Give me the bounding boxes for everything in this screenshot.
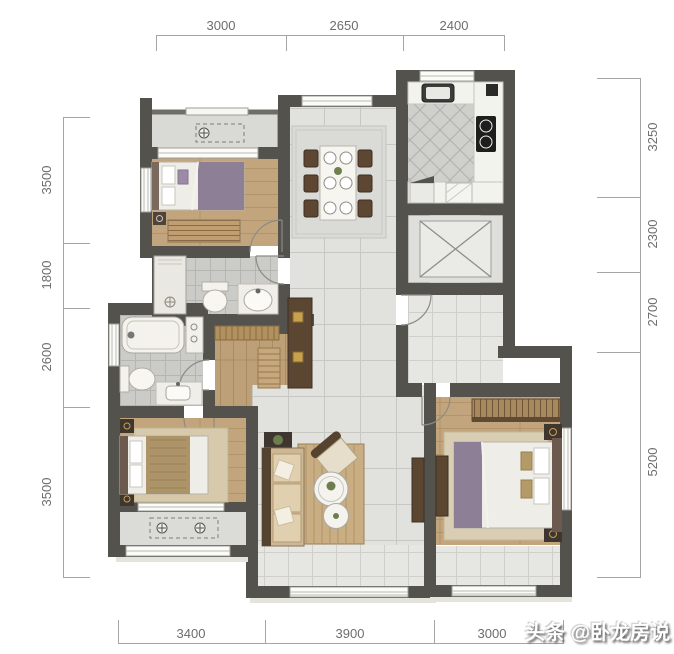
watermark: 头条 @卧龙房说 [525, 616, 674, 645]
furniture-bedroom-small [120, 419, 228, 506]
chair [358, 200, 372, 217]
pillow [162, 187, 175, 205]
stove [476, 116, 496, 152]
dim-top-0: 3000 [207, 18, 236, 33]
plant-icon [334, 167, 342, 175]
plate [324, 202, 336, 214]
nightstand [153, 212, 166, 225]
cabinet-knob [293, 312, 303, 322]
throw-pillow [274, 506, 294, 526]
faucet-icon [176, 382, 180, 386]
floor-balcony-small [120, 512, 246, 545]
room-balcony-top [148, 108, 280, 152]
headboard [152, 162, 159, 210]
toilet [129, 368, 155, 390]
furniture-dining [292, 126, 386, 238]
plant-icon [333, 513, 339, 519]
plant-icon [327, 482, 336, 491]
pillow [162, 166, 175, 184]
tv-bench [436, 456, 448, 516]
nightstand [120, 419, 134, 433]
dim-left-1: 1800 [39, 261, 54, 290]
cushion [521, 480, 532, 498]
plate [340, 152, 352, 164]
dim-left-0: 3500 [39, 166, 54, 195]
floorplan-image: 3000 2650 2400 3400 3900 3000 3500 1800 … [0, 0, 674, 654]
dim-right-0: 3250 [645, 123, 660, 152]
dim-left-3: 3500 [39, 478, 54, 507]
plate [324, 152, 336, 164]
threshold-mat [215, 326, 279, 340]
appliance-box [486, 84, 498, 96]
dim-right-1: 2300 [645, 220, 660, 249]
pillow [130, 465, 142, 487]
blanket-purple [198, 162, 244, 210]
tv-stand [412, 458, 424, 522]
plant-icon [273, 435, 283, 445]
dim-top-1: 2650 [330, 18, 359, 33]
floor-corridor-marble [312, 332, 396, 385]
dim-right-2: 2700 [645, 298, 660, 327]
floor-balcony-living [252, 545, 424, 586]
dim-bottom-1: 3900 [336, 626, 365, 641]
window-master-right [561, 428, 571, 510]
cushion [178, 170, 188, 184]
nightstand [544, 424, 562, 440]
cushion [521, 452, 532, 470]
faucet-icon [128, 332, 135, 339]
elevator-shaft [408, 209, 503, 289]
chair [304, 150, 318, 167]
cabinet-knob [293, 352, 303, 362]
pillow [534, 448, 549, 474]
chair [304, 200, 318, 217]
dim-bottom-2: 3000 [478, 626, 507, 641]
cabinet [410, 183, 434, 203]
dim-left-2: 2600 [39, 343, 54, 372]
plate [324, 177, 336, 189]
pillow [130, 441, 142, 463]
balcony-top-rail [186, 108, 248, 115]
chair [358, 175, 372, 192]
plate [340, 202, 352, 214]
floor-foyer [408, 295, 503, 383]
window-bathroom [109, 324, 119, 366]
window-left-bedroom [141, 168, 151, 212]
sink-basin [166, 386, 190, 400]
plate [340, 177, 352, 189]
pillow [534, 478, 549, 504]
dim-right-3: 5200 [645, 448, 660, 477]
toilet [203, 290, 227, 312]
faucet-icon [256, 289, 261, 294]
headboard [120, 436, 128, 494]
washer [186, 317, 203, 353]
dim-top-2: 2400 [440, 18, 469, 33]
bench [168, 220, 240, 242]
dim-bottom-0: 3400 [177, 626, 206, 641]
blanket-brown [146, 436, 190, 494]
watermark-text: 头条 @卧龙房说 [525, 622, 670, 644]
headboard [552, 438, 562, 532]
chair [358, 150, 372, 167]
floor-kitchen-tile [408, 104, 474, 184]
floor-window-bay [436, 546, 560, 585]
floorplan-drawing: 3000 2650 2400 3400 3900 3000 3500 1800 … [0, 0, 674, 654]
chair [304, 175, 318, 192]
toilet-tank [120, 366, 129, 392]
blanket-purple [454, 442, 482, 528]
balcony-top-outline [148, 112, 280, 152]
